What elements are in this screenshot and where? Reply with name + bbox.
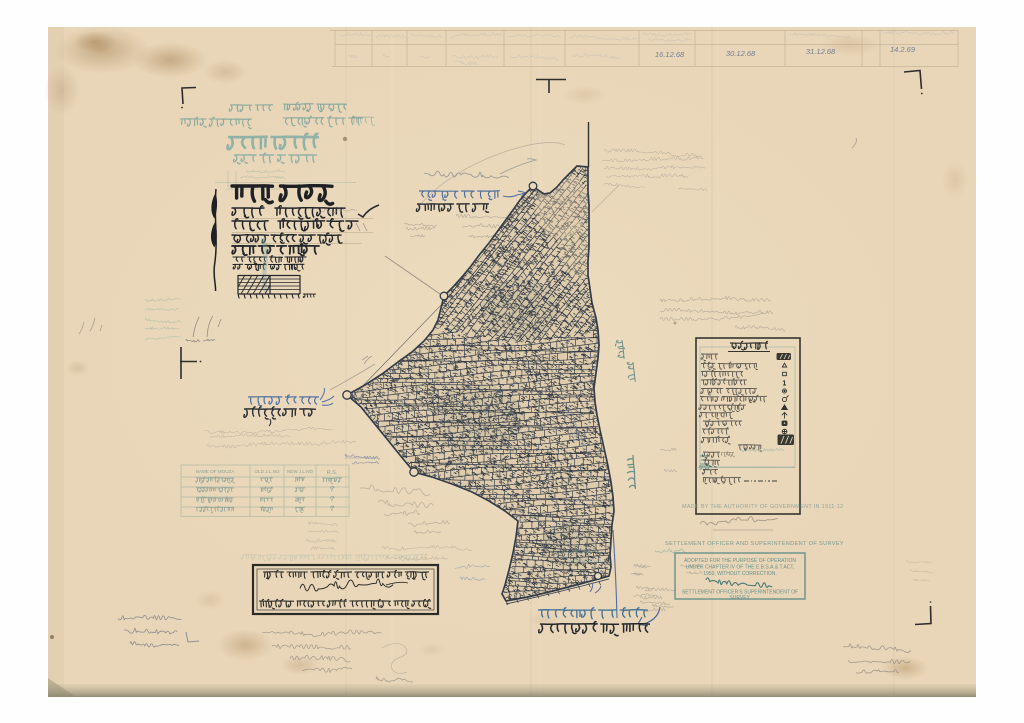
svg-text:SURVEY.: SURVEY. (729, 595, 750, 601)
svg-text:MADE BY THE AUTHORITY OF GOVER: MADE BY THE AUTHORITY OF GOVERNMENT IN 1… (682, 504, 843, 510)
svg-text:1950, WITHOUT CORRECTION.: 1950, WITHOUT CORRECTION. (703, 571, 777, 577)
svg-text:OLD J.L.NO: OLD J.L.NO (254, 469, 279, 474)
svg-text:R.S.: R.S. (327, 470, 338, 476)
svg-text:30.12.68: 30.12.68 (726, 49, 756, 58)
svg-text:ADOPTED FOR THE PURPOSE OF OPE: ADOPTED FOR THE PURPOSE OF OPERATION (684, 558, 796, 564)
svg-text:SETTLEMENT OFFICER AND SUPERIN: SETTLEMENT OFFICER AND SUPERINTENDENT OF… (665, 541, 844, 547)
svg-text:UNDER CHAPTER IV OF THE E.B.S.: UNDER CHAPTER IV OF THE E.B.S.A.& T.ACT, (686, 565, 794, 571)
svg-text:16.12.68: 16.12.68 (655, 50, 685, 59)
svg-text:NEW J.L.NO: NEW J.L.NO (287, 469, 314, 474)
svg-text:14.2.69: 14.2.69 (890, 45, 916, 54)
svg-text:31.12.68: 31.12.68 (806, 47, 836, 56)
svg-text:NAME OF MOUZA: NAME OF MOUZA (196, 469, 236, 474)
